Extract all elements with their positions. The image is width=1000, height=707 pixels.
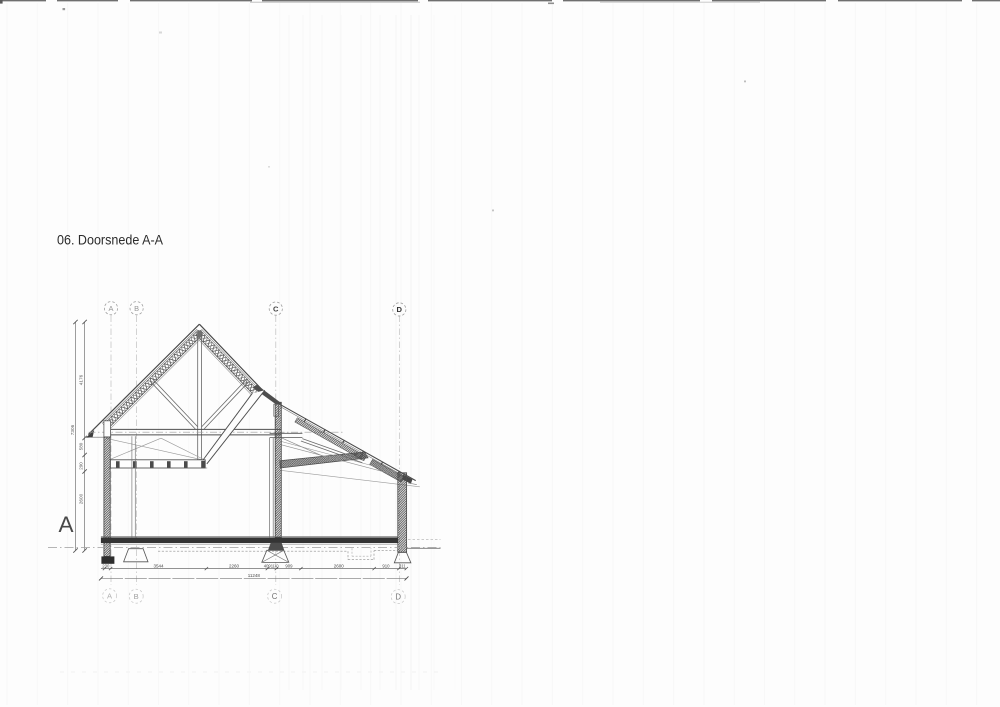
svg-text:B: B: [134, 592, 139, 601]
svg-text:290: 290: [79, 462, 84, 470]
svg-text:A: A: [109, 304, 114, 313]
svg-text:D: D: [395, 592, 401, 601]
svg-text:311: 311: [399, 563, 406, 568]
svg-text:4091(A): 4091(A): [264, 563, 280, 568]
svg-text:230: 230: [102, 563, 110, 568]
svg-text:11248: 11248: [248, 573, 261, 578]
svg-text:2600: 2600: [334, 563, 345, 568]
svg-text:06. Doorsnede A-A: 06. Doorsnede A-A: [57, 232, 164, 248]
svg-text:2600: 2600: [79, 493, 84, 504]
svg-text:C: C: [272, 592, 278, 601]
svg-text:C: C: [273, 304, 279, 313]
svg-text:7306: 7306: [70, 424, 75, 435]
svg-text:D: D: [397, 305, 403, 314]
svg-text:2260: 2260: [229, 563, 240, 568]
svg-text:909: 909: [285, 563, 293, 568]
svg-text:B: B: [134, 304, 139, 313]
svg-text:3544: 3544: [153, 563, 164, 568]
svg-text:910: 910: [382, 563, 390, 568]
svg-text:580: 580: [79, 442, 84, 450]
svg-text:4176: 4176: [79, 374, 84, 385]
svg-text:A: A: [59, 512, 74, 537]
